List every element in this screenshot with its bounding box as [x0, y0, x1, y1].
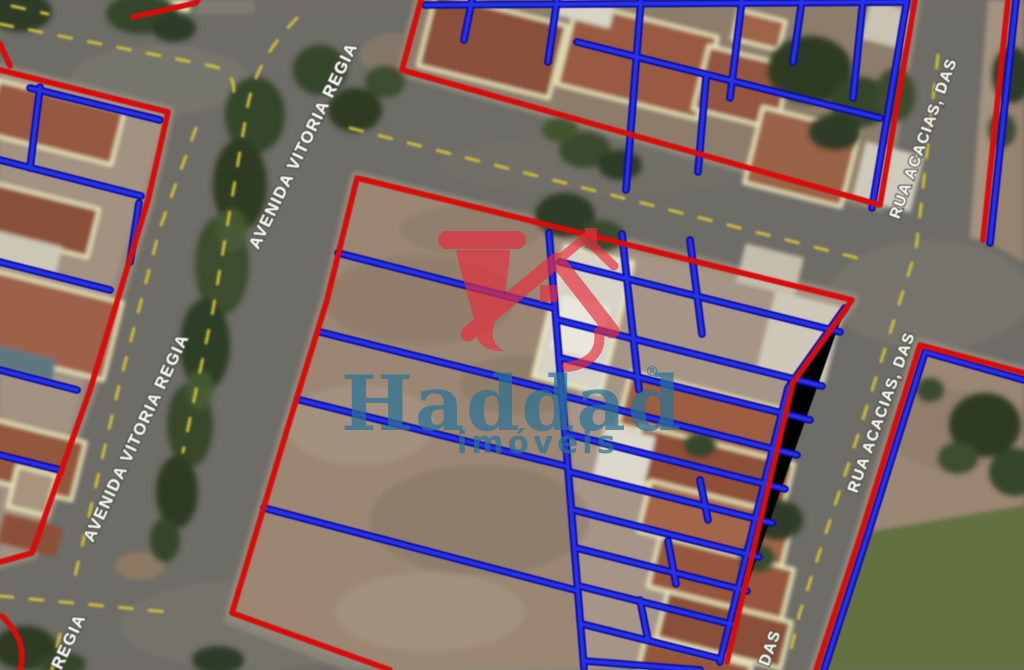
logo-registered-mark: ® — [645, 364, 659, 380]
map-canvas: AVENIDA VITORIA REGIA AVENIDA VITORIA RE… — [0, 0, 1024, 670]
satellite-map-image: AVENIDA VITORIA REGIA AVENIDA VITORIA RE… — [0, 0, 1024, 670]
logo-tagline: imóveis — [457, 425, 620, 461]
